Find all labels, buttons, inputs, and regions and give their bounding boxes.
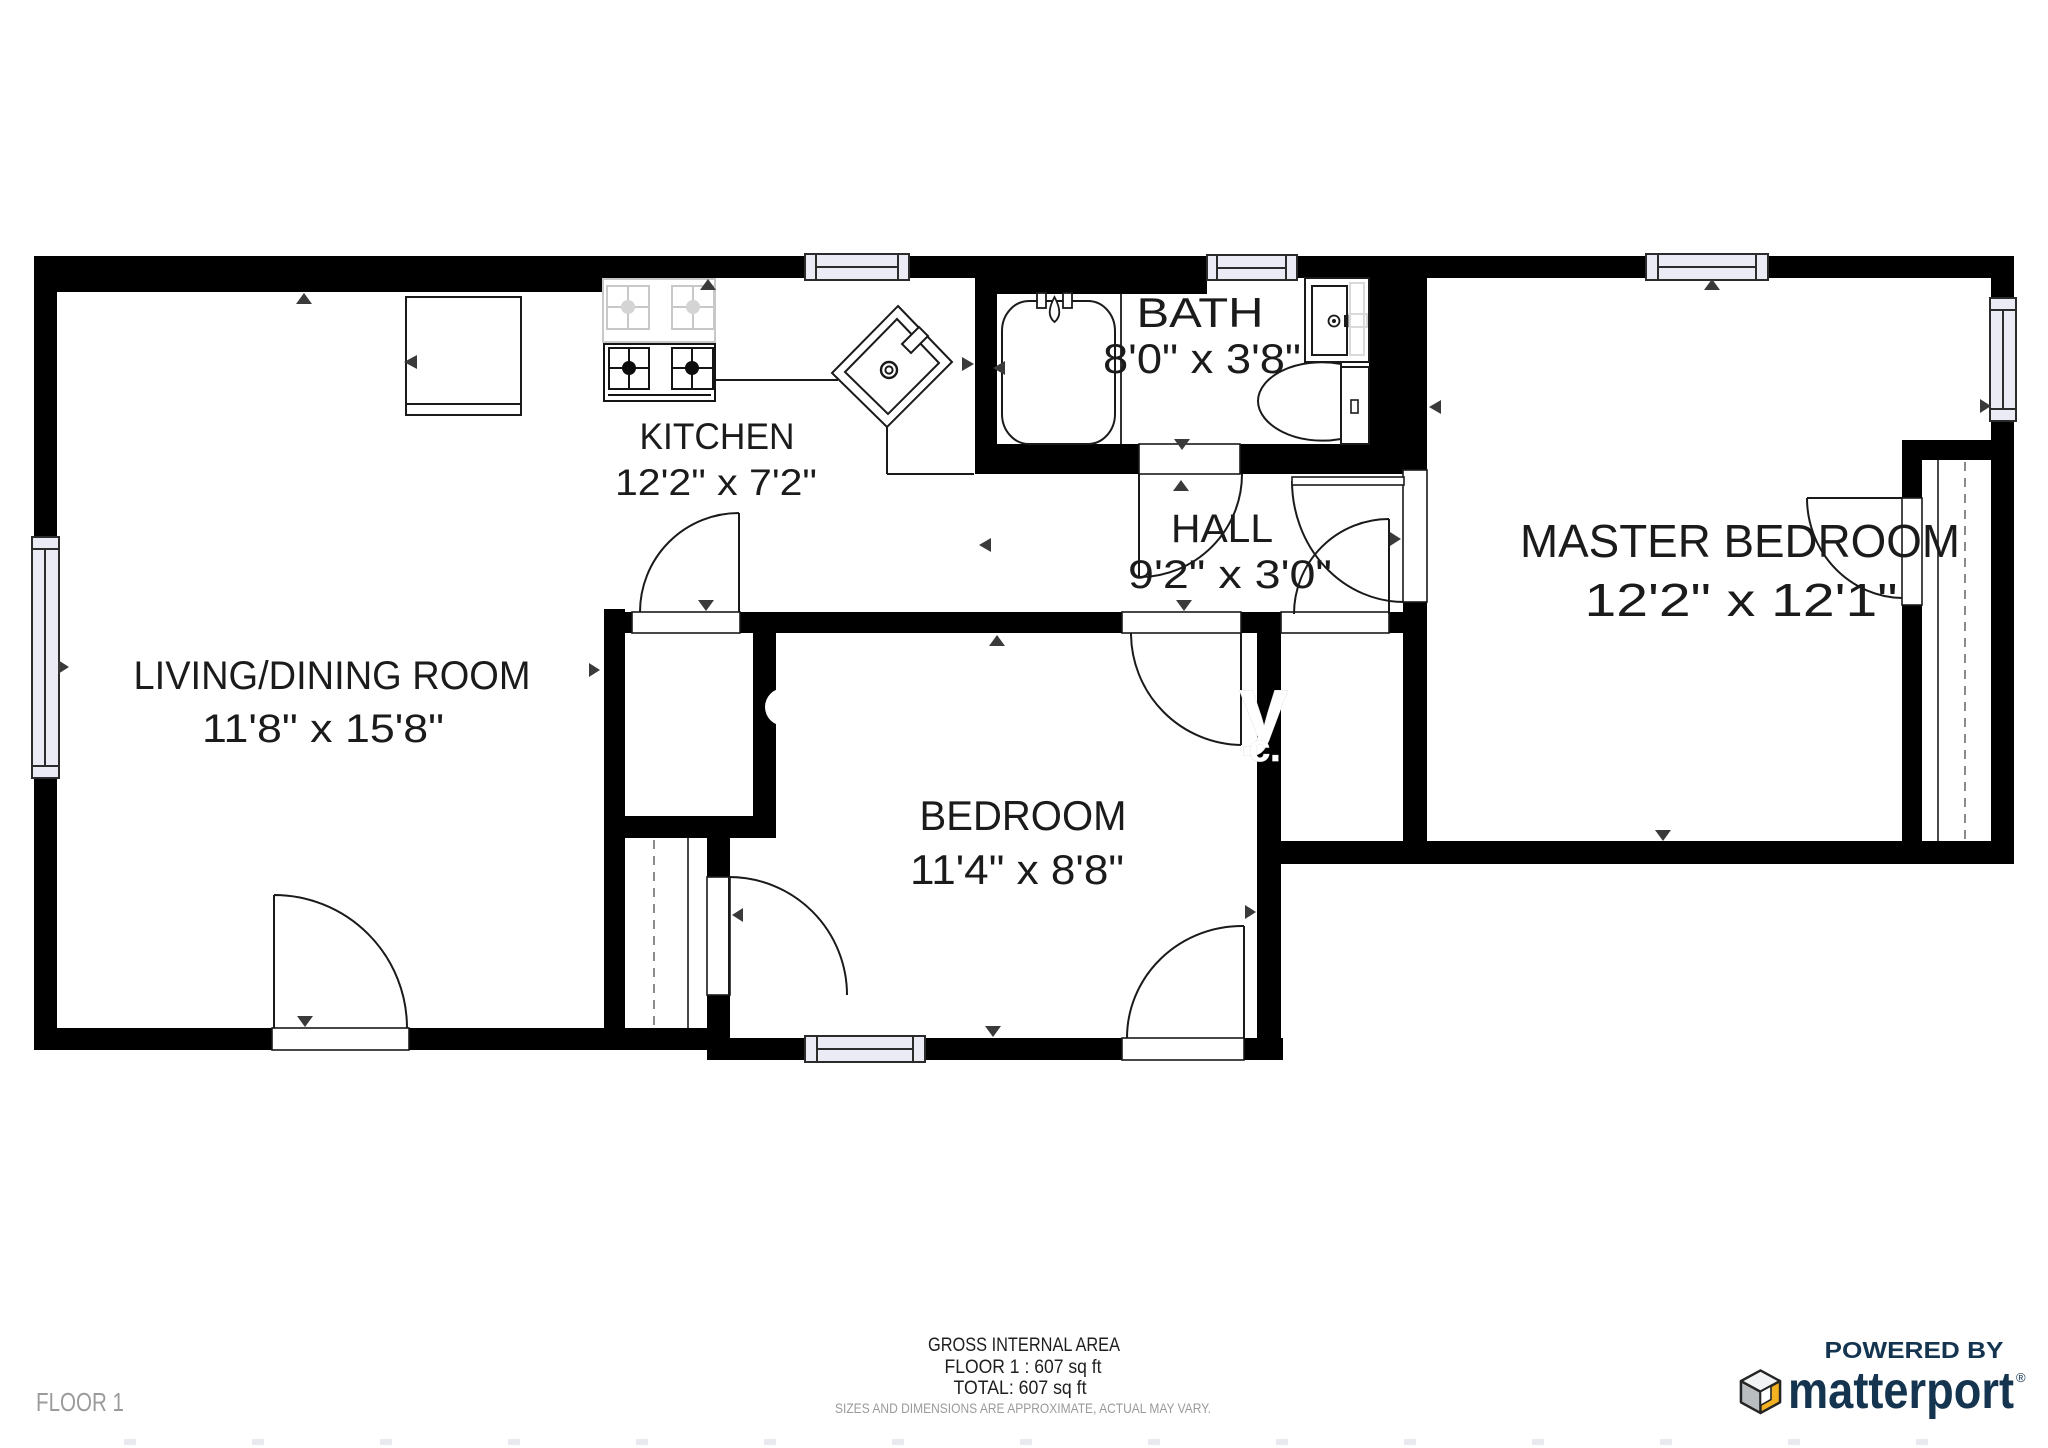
svg-text:BEDROOM: BEDROOM — [920, 792, 1127, 839]
svg-text:MASTER BEDROOM: MASTER BEDROOM — [1520, 515, 1960, 567]
svg-text:KITCHEN: KITCHEN — [640, 416, 795, 457]
svg-text:8'0" x 3'8": 8'0" x 3'8" — [1103, 335, 1301, 382]
svg-text:12'2" x 7'2": 12'2" x 7'2" — [615, 462, 817, 503]
svg-text:12'2" x 12'1": 12'2" x 12'1" — [1585, 574, 1898, 626]
svg-text:11'4" x 8'8": 11'4" x 8'8" — [910, 846, 1124, 893]
svg-text:GROSS INTERNAL AREA: GROSS INTERNAL AREA — [928, 1334, 1120, 1356]
svg-text:SIZES AND DIMENSIONS ARE APPRO: SIZES AND DIMENSIONS ARE APPROXIMATE, AC… — [835, 1400, 1211, 1416]
svg-text:®: ® — [2016, 1370, 2026, 1385]
svg-text:LIVING/DINING ROOM: LIVING/DINING ROOM — [134, 654, 531, 698]
svg-text:TOTAL: 607 sq ft: TOTAL: 607 sq ft — [954, 1377, 1088, 1399]
svg-text:c.: c. — [1249, 728, 1281, 770]
svg-text:HALL: HALL — [1171, 507, 1273, 551]
svg-text:9'2" x 3'0": 9'2" x 3'0" — [1128, 553, 1332, 597]
svg-text:POWERED BY: POWERED BY — [1825, 1337, 2004, 1363]
svg-text:BATH: BATH — [1137, 289, 1264, 336]
svg-text:matterport: matterport — [1788, 1362, 2014, 1420]
svg-text:FLOOR 1 : 607 sq ft: FLOOR 1 : 607 sq ft — [945, 1356, 1103, 1378]
svg-text:11'8" x 15'8": 11'8" x 15'8" — [202, 707, 444, 751]
svg-text:FLOOR 1: FLOOR 1 — [36, 1387, 124, 1417]
